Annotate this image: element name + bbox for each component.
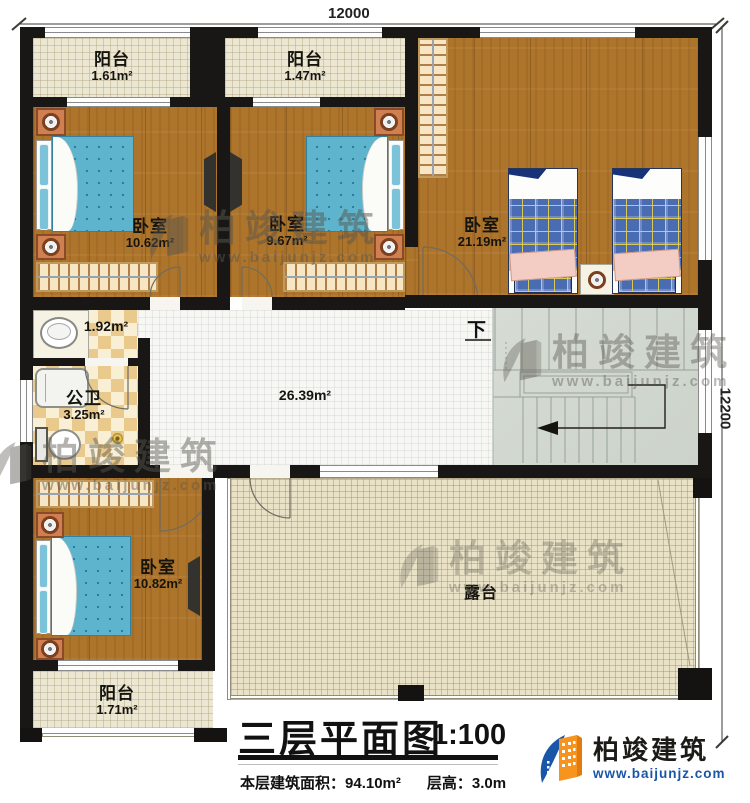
floor-plan-canvas: 阳台1.61m² 阳台1.47m² 卧室10.62m² 卧室9.67m² 卧室2… — [0, 0, 750, 803]
room-label-laundry: 1.92m² — [84, 319, 128, 335]
title-underline-thin — [238, 764, 498, 765]
column-post — [398, 685, 424, 701]
door-opening — [150, 297, 180, 310]
wall — [698, 260, 712, 330]
window — [480, 27, 635, 38]
window — [67, 97, 170, 107]
brand-name: 柏竣建筑 — [593, 737, 726, 763]
wall — [698, 27, 712, 137]
door-bedroom-2 — [242, 267, 272, 297]
brand-logo-icon — [534, 731, 586, 787]
room-label-bedroom-4: 卧室10.82m² — [134, 558, 182, 592]
wall — [438, 465, 712, 478]
door-bedroom-3 — [423, 247, 478, 302]
floor-area-value: 94.10m² — [345, 775, 401, 792]
door-opening — [160, 465, 213, 478]
room-label-balcony-top-mid: 阳台1.47m² — [284, 50, 325, 84]
door-opening — [242, 297, 272, 310]
door-terrace — [250, 478, 290, 518]
plan-scale: 1:100 — [432, 719, 506, 752]
wall — [180, 297, 217, 310]
door-opening — [250, 465, 290, 478]
wall — [190, 27, 258, 38]
window — [320, 465, 438, 478]
wall — [405, 27, 418, 247]
plan-linework — [0, 0, 750, 803]
title-underline — [238, 755, 498, 760]
window — [58, 660, 178, 671]
column-post — [20, 728, 42, 742]
floor-height-value: 3.0m — [472, 775, 506, 792]
wall — [20, 660, 58, 671]
balcony-rail-bottom — [42, 733, 196, 737]
terrace-rail-left — [227, 478, 231, 700]
window — [698, 330, 712, 433]
stair-down-arrow-icon — [537, 421, 558, 435]
wall — [33, 358, 85, 366]
wall — [217, 107, 230, 310]
column-post — [678, 668, 712, 700]
room-label-terrace: 露台 — [464, 585, 498, 603]
stair-walk-line — [556, 385, 665, 428]
window — [253, 97, 320, 107]
floor-height-label: 层高： — [427, 775, 472, 792]
terrace-rail-right — [695, 496, 699, 670]
wall — [138, 338, 150, 465]
wall — [202, 478, 215, 660]
wall — [20, 297, 150, 310]
dimension-right: 12200 — [716, 388, 733, 430]
room-label-bathroom: 公卫3.25m² — [63, 389, 104, 423]
floor-area-label: 本层建筑面积： — [240, 775, 345, 792]
wall — [128, 358, 138, 366]
column-post — [194, 728, 227, 742]
dimension-top: 12000 — [328, 5, 370, 22]
stair-treads — [493, 308, 698, 463]
brand-logo: 柏竣建筑 www.baijunjz.com — [534, 731, 726, 787]
terrace-slope-line — [658, 480, 690, 666]
wall — [178, 660, 215, 671]
wall — [170, 97, 253, 107]
wall — [320, 97, 418, 107]
wall — [405, 295, 712, 308]
terrace-rail-bottom — [230, 695, 700, 699]
door-opening — [85, 358, 128, 366]
window — [20, 380, 33, 442]
room-label-bedroom-1: 卧室10.62m² — [126, 217, 174, 251]
wall — [20, 465, 160, 478]
plan-info: 本层建筑面积：94.10m²层高：3.0m — [240, 772, 506, 793]
room-label-bedroom-2: 卧室9.67m² — [266, 215, 307, 249]
wall — [382, 27, 480, 38]
wall — [290, 465, 320, 478]
wall — [20, 97, 67, 107]
wall — [213, 465, 250, 478]
brand-website: www.baijunjz.com — [593, 766, 726, 781]
room-label-balcony-bottom: 阳台1.71m² — [96, 684, 137, 718]
door-bedroom-1 — [150, 267, 180, 297]
wall — [272, 297, 405, 310]
wall — [20, 27, 33, 728]
room-label-balcony-top-left: 阳台1.61m² — [91, 50, 132, 84]
window — [45, 27, 190, 38]
column-post — [693, 478, 712, 498]
stairs-down-label: 下 — [467, 315, 486, 342]
dimension-lines — [12, 18, 728, 748]
room-label-bedroom-3: 卧室21.19m² — [458, 216, 506, 250]
room-label-hall: 26.39m² — [279, 388, 331, 404]
window — [698, 137, 712, 260]
window — [258, 27, 382, 38]
